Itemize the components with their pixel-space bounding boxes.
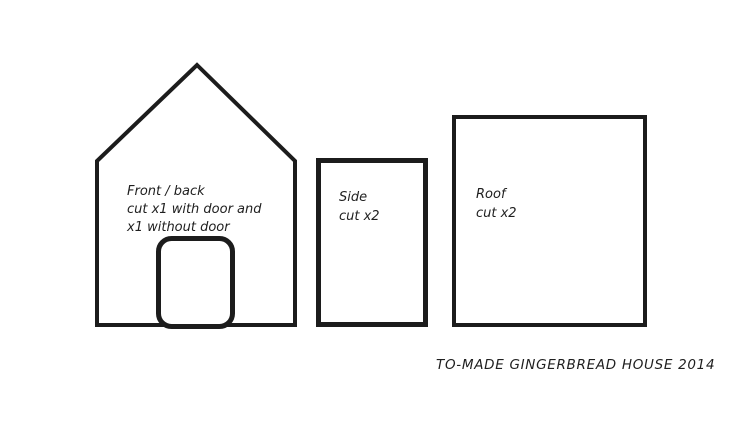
front-back-name: Front / back xyxy=(127,183,262,201)
roof-instruction-1: cut x2 xyxy=(476,204,517,223)
diagram-caption: TO-MADE GINGERBREAD HOUSE 2014 xyxy=(436,357,715,373)
gingerbread-template-diagram: Front / back cut x1 with door and x1 wit… xyxy=(0,0,736,432)
side-name: Side xyxy=(339,188,380,207)
side-piece-outline xyxy=(319,161,426,325)
side-instruction-1: cut x2 xyxy=(339,207,380,226)
roof-label: Roof cut x2 xyxy=(476,185,517,223)
door-cutout-outline xyxy=(159,239,233,327)
front-back-instruction-1: cut x1 with door and xyxy=(127,201,262,219)
roof-name: Roof xyxy=(476,185,517,204)
front-back-instruction-2: x1 without door xyxy=(127,219,262,237)
front-back-label: Front / back cut x1 with door and x1 wit… xyxy=(127,183,262,237)
side-label: Side cut x2 xyxy=(339,188,380,226)
